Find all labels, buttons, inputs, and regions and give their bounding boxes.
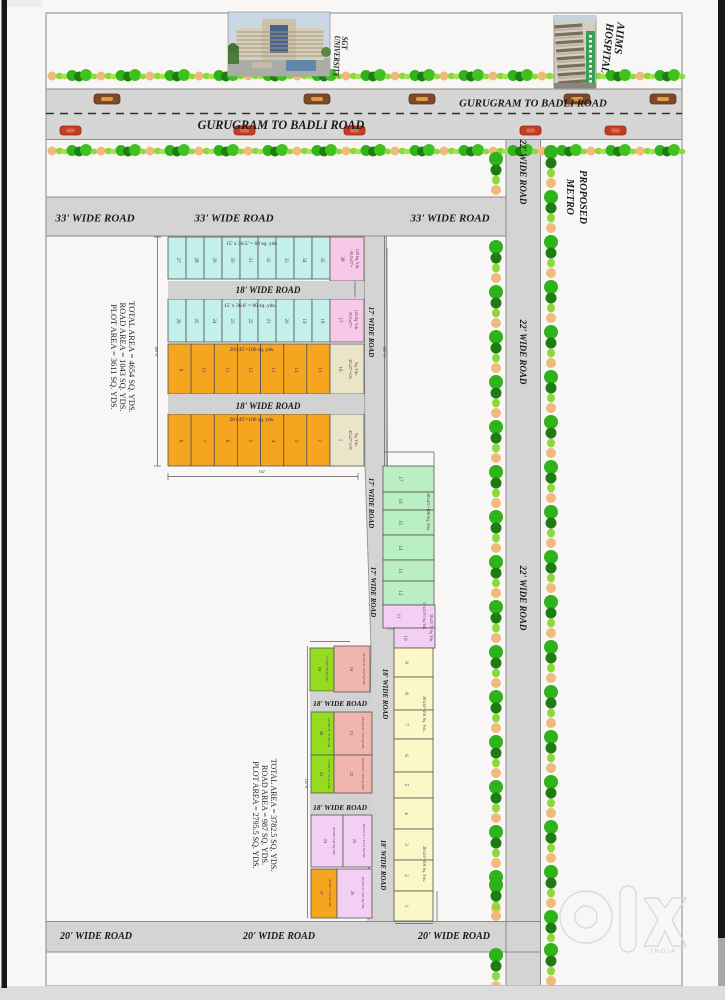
svg-text:29'x44'=142 Sq.Yds.: 29'x44'=142 Sq.Yds. <box>332 827 336 855</box>
svg-text:30: 30 <box>229 258 234 264</box>
svg-text:24: 24 <box>323 839 328 844</box>
svg-text:44'x27'-5"=113.5 Sq.Yds.: 44'x27'-5"=113.5 Sq.Yds. <box>362 824 366 859</box>
svg-text:20: 20 <box>283 319 288 325</box>
svg-text:20'x45'=100 sq. yds.: 20'x45'=100 sq. yds. <box>229 417 275 423</box>
svg-text:17: 17 <box>397 477 402 483</box>
svg-text:17' WIDE ROAD: 17' WIDE ROAD <box>367 478 375 528</box>
svg-text:11: 11 <box>224 368 229 373</box>
svg-text:33: 33 <box>283 258 288 264</box>
svg-text:29: 29 <box>211 258 216 264</box>
svg-text:22: 22 <box>349 772 354 777</box>
svg-text:17'x44' 83 Sq. Yds.: 17'x44' 83 Sq. Yds. <box>422 602 426 630</box>
svg-text:17: 17 <box>337 318 342 324</box>
svg-text:18: 18 <box>319 319 324 325</box>
svg-text:162': 162' <box>259 469 266 474</box>
svg-text:17' WIDE ROAD: 17' WIDE ROAD <box>367 307 375 357</box>
svg-text:28: 28 <box>193 258 198 264</box>
svg-text:26'x34'-6"=100 Sq.Yds.: 26'x34'-6"=100 Sq.Yds. <box>362 653 366 686</box>
svg-text:15: 15 <box>316 368 321 374</box>
svg-text:19: 19 <box>317 667 322 672</box>
svg-text:18' WIDE ROAD: 18' WIDE ROAD <box>236 285 301 295</box>
svg-text:Sq. Yds.: Sq. Yds. <box>354 433 359 447</box>
svg-text:18' WIDE ROAD: 18' WIDE ROAD <box>313 699 368 708</box>
svg-text:14: 14 <box>293 368 298 374</box>
svg-text:20' WIDE ROAD: 20' WIDE ROAD <box>417 931 490 942</box>
svg-text:11: 11 <box>395 614 400 619</box>
svg-text:17'x30'-6" 71 Sq.Yds.: 17'x30'-6" 71 Sq.Yds. <box>327 759 331 789</box>
svg-text:23: 23 <box>229 319 234 325</box>
svg-text:METRO: METRO <box>564 178 575 215</box>
svg-text:15' x 36.5' = 60 sq. yds.: 15' x 36.5' = 60 sq. yds. <box>226 241 279 247</box>
svg-text:20: 20 <box>319 731 324 736</box>
svg-text:27: 27 <box>319 891 324 896</box>
svg-text:45'x32'-3"=161 Sq.Yds.: 45'x32'-3"=161 Sq.Yds. <box>361 877 365 910</box>
svg-text:112'-9": 112'-9" <box>304 778 309 790</box>
svg-text:20'x45'=100 sq. yds.: 20'x45'=100 sq. yds. <box>229 347 275 353</box>
svg-text:26'x35'=101 Sq. Yds.: 26'x35'=101 Sq. Yds. <box>422 846 427 882</box>
svg-text:36.5'x27'=: 36.5'x27'= <box>349 251 354 268</box>
svg-text:22' WIDE ROAD: 22' WIDE ROAD <box>518 565 528 631</box>
svg-text:15: 15 <box>397 520 402 526</box>
svg-text:15' x 36.6' = 60 sq. yds.: 15' x 36.6' = 60 sq. yds. <box>224 303 277 309</box>
svg-text:10: 10 <box>201 368 206 374</box>
svg-text:18' WIDE ROAD: 18' WIDE ROAD <box>381 669 389 719</box>
svg-text:35: 35 <box>319 258 324 264</box>
svg-text:34: 34 <box>301 258 306 264</box>
svg-text:18' WIDE ROAD: 18' WIDE ROAD <box>236 401 301 411</box>
svg-text:18: 18 <box>349 667 354 672</box>
svg-text:33' WIDE ROAD: 33' WIDE ROAD <box>409 213 489 225</box>
svg-text:12: 12 <box>247 368 252 374</box>
svg-text:17' WIDE ROAD: 17' WIDE ROAD <box>369 567 377 617</box>
svg-text:26'x34'-6"=100 Sq.Yds.: 26'x34'-6"=100 Sq.Yds. <box>361 758 365 791</box>
svg-text:186'-3": 186'-3" <box>382 346 387 358</box>
svg-text:21: 21 <box>349 731 354 736</box>
svg-text:38: 38 <box>339 257 344 263</box>
svg-text:26'x35'=101 Sq. Yds.: 26'x35'=101 Sq. Yds. <box>422 696 427 732</box>
svg-text:25: 25 <box>352 839 357 844</box>
svg-text:26: 26 <box>175 319 180 325</box>
svg-text:18' WIDE ROAD: 18' WIDE ROAD <box>379 840 387 890</box>
svg-text:31: 31 <box>247 258 252 264</box>
svg-text:16: 16 <box>337 367 342 373</box>
svg-text:33' WIDE ROAD: 33' WIDE ROAD <box>54 213 134 225</box>
svg-text:19: 19 <box>301 319 306 325</box>
svg-text:17'x30'-6" 71 Sq.Yds.: 17'x30'-6" 71 Sq.Yds. <box>327 718 331 748</box>
svg-text:13: 13 <box>397 568 402 574</box>
svg-text:18' WIDE ROAD: 18' WIDE ROAD <box>313 803 368 812</box>
svg-text:TOTAL AREA = 3782.5 SQ. YDS.: TOTAL AREA = 3782.5 SQ. YDS. <box>269 759 278 871</box>
svg-text:TOTAL AREA = 4654 SQ. YDS.: TOTAL AREA = 4654 SQ. YDS. <box>127 301 136 412</box>
svg-text:45'x27'=135: 45'x27'=135 <box>348 430 353 450</box>
svg-text:13: 13 <box>270 368 275 374</box>
svg-text:16: 16 <box>397 499 402 505</box>
svg-text:27: 27 <box>175 258 180 264</box>
svg-text:12: 12 <box>397 591 402 597</box>
svg-text:17'x30'=58 Sq.Yds.: 17'x30'=58 Sq.Yds. <box>325 656 329 683</box>
svg-text:20' WIDE ROAD: 20' WIDE ROAD <box>242 931 315 942</box>
svg-text:129 Sq. Yds.: 129 Sq. Yds. <box>355 249 360 270</box>
svg-text:ROAD AREA = 1043 SQ. YDS.: ROAD AREA = 1043 SQ. YDS. <box>118 303 127 412</box>
svg-text:22: 22 <box>247 319 252 325</box>
svg-text:Sq. Yds.: Sq. Yds. <box>354 362 359 376</box>
svg-text:I N D I A: I N D I A <box>651 948 676 955</box>
svg-text:PROPOSED: PROPOSED <box>577 170 588 224</box>
svg-text:45'x27'=135: 45'x27'=135 <box>348 359 353 379</box>
svg-text:33' WIDE ROAD: 33' WIDE ROAD <box>193 213 273 225</box>
svg-text:14: 14 <box>397 545 402 551</box>
svg-text:186'-0": 186'-0" <box>154 346 159 358</box>
svg-text:26'x25' 74 Sq. Yds.: 26'x25' 74 Sq. Yds. <box>429 614 433 642</box>
svg-text:26'x34'-6"=100 Sq.Yds.: 26'x34'-6"=100 Sq.Yds. <box>361 717 365 750</box>
svg-text:32: 32 <box>265 258 270 264</box>
svg-text:ROAD AREA = 987 SQ. YDS.: ROAD AREA = 987 SQ. YDS. <box>260 765 269 865</box>
svg-text:22' WIDE ROAD: 22' WIDE ROAD <box>518 139 528 205</box>
svg-text:36.5'x27'=: 36.5'x27'= <box>348 312 353 329</box>
svg-text:20'x45'=100 Sq. Yds.: 20'x45'=100 Sq. Yds. <box>426 493 431 532</box>
svg-text:21: 21 <box>265 319 270 325</box>
svg-text:PLOT AREA = 3611 SQ. YDS.: PLOT AREA = 3611 SQ. YDS. <box>109 304 118 410</box>
svg-text:26: 26 <box>350 891 355 896</box>
svg-text:10: 10 <box>402 636 407 642</box>
svg-text:20' WIDE ROAD: 20' WIDE ROAD <box>59 931 132 942</box>
svg-text:22' WIDE ROAD: 22' WIDE ROAD <box>518 319 528 385</box>
svg-text:GURUGRAM TO BADLI ROAD: GURUGRAM TO BADLI ROAD <box>459 98 607 110</box>
svg-text:PLOT AREA = 2795.5 SQ. YDS.: PLOT AREA = 2795.5 SQ. YDS. <box>251 761 260 868</box>
svg-text:UNIVERSITY: UNIVERSITY <box>331 35 342 77</box>
svg-text:23: 23 <box>319 772 324 777</box>
svg-text:129 Sq. Yds.: 129 Sq. Yds. <box>354 310 359 331</box>
svg-text:24: 24 <box>211 319 216 325</box>
svg-text:25: 25 <box>193 319 198 325</box>
svg-text:GURUGRAM TO BADLI ROAD: GURUGRAM TO BADLI ROAD <box>198 118 365 132</box>
svg-text:30'x45'=150 Sq.Yds.: 30'x45'=150 Sq.Yds. <box>328 879 332 907</box>
